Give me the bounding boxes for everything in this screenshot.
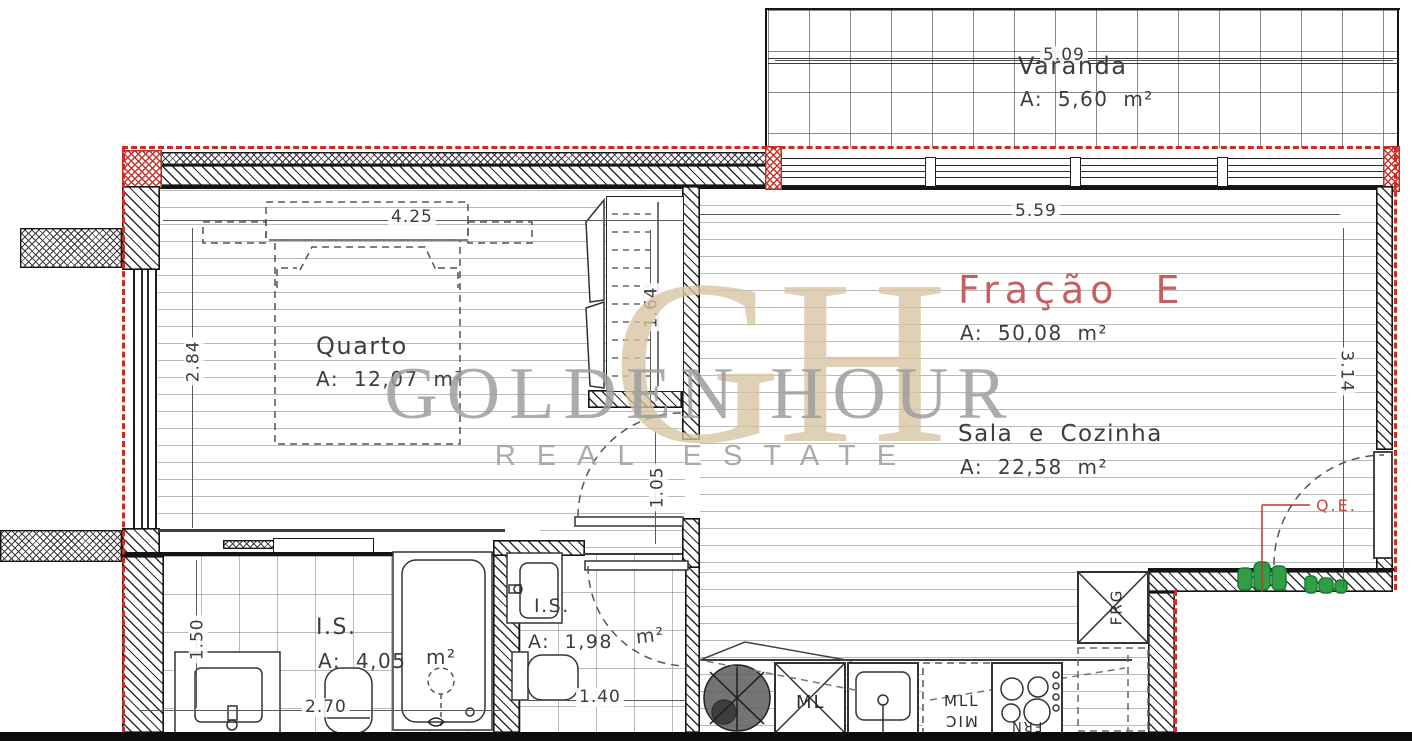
electrical-panel-label: Q.E. bbox=[1316, 496, 1357, 515]
dim-quarto-height: 2.84 bbox=[185, 337, 204, 385]
varanda-area: A: 5,60 m² bbox=[1020, 88, 1154, 110]
washing-machine-label: ML bbox=[796, 692, 826, 713]
bed bbox=[203, 202, 532, 444]
plants bbox=[1238, 562, 1347, 593]
bottom-border-strip bbox=[0, 732, 1412, 741]
bath2-label: I.S. bbox=[534, 596, 570, 617]
dishwasher-label: MLL bbox=[944, 692, 980, 710]
dim-wardrobe: 1.64 bbox=[643, 283, 662, 331]
dim-bath2-width: 1.40 bbox=[576, 688, 624, 707]
bath2-area: A: 1,98 bbox=[528, 632, 613, 653]
dim-bath1-width: 2.70 bbox=[302, 698, 350, 717]
quarto-label: Quarto bbox=[316, 333, 408, 359]
dim-sala-height: 3.14 bbox=[1337, 347, 1356, 395]
bath1-area-unit: m² bbox=[426, 646, 457, 668]
oven-label: FRN bbox=[1010, 718, 1042, 733]
kitchen-sink bbox=[848, 663, 918, 733]
bath1-area: A: 4,05 bbox=[318, 650, 406, 672]
microwave-label: MIC bbox=[944, 712, 978, 730]
dimline-3.14 bbox=[1343, 228, 1344, 588]
fraction-area: A: 50,08 m² bbox=[960, 322, 1108, 344]
fraction-title: Fração E bbox=[958, 270, 1186, 312]
sala-area: A: 22,58 m² bbox=[960, 456, 1108, 478]
fixtures-layer bbox=[0, 0, 1412, 741]
bath1-sink bbox=[175, 652, 280, 733]
dim-bath1-height: 1.50 bbox=[189, 615, 208, 663]
bathtub bbox=[393, 552, 492, 730]
bath1-label: I.S. bbox=[316, 616, 356, 640]
varanda-label: Varanda bbox=[1018, 53, 1128, 79]
dim-quarto-width: 4.25 bbox=[388, 208, 436, 227]
bath2-toilet bbox=[512, 652, 578, 700]
fridge-label: FRG bbox=[1107, 589, 1125, 626]
dim-hall: 1.05 bbox=[649, 463, 668, 511]
floor-plan: 5.09 5.59 4.25 2.84 3.14 1.64 1.05 1.50 … bbox=[0, 0, 1412, 741]
sala-label: Sala e Cozinha bbox=[958, 422, 1163, 447]
dim-sala-width: 5.59 bbox=[1012, 202, 1060, 221]
quarto-area: A: 12,07 m² bbox=[316, 368, 464, 390]
bath2-area-unit: m² bbox=[635, 625, 666, 649]
